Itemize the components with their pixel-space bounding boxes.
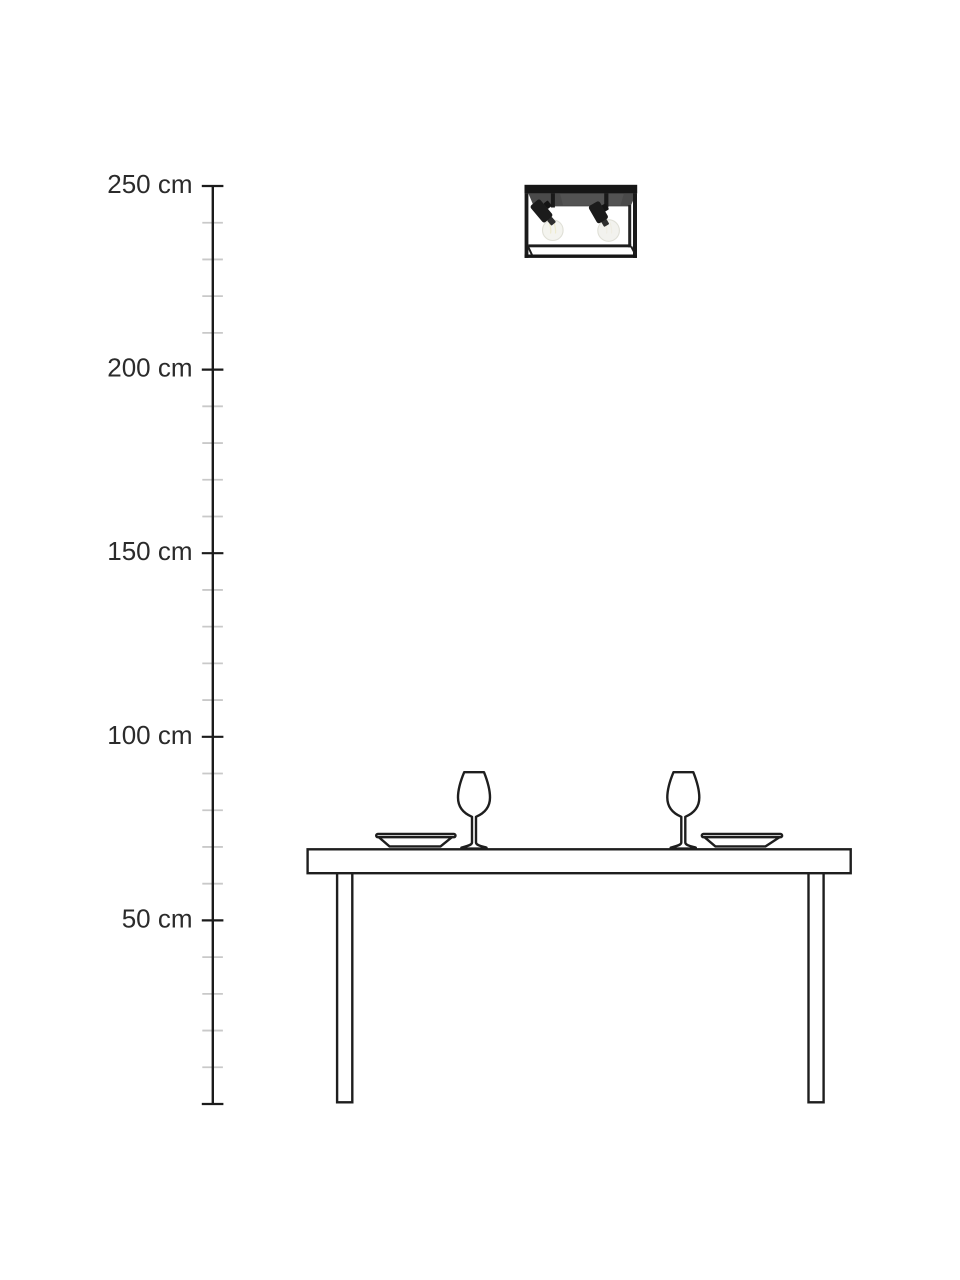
svg-text:50 cm: 50 cm	[122, 903, 193, 933]
svg-text:100 cm: 100 cm	[107, 720, 192, 750]
svg-text:250 cm: 250 cm	[107, 169, 192, 199]
svg-text:150 cm: 150 cm	[107, 536, 192, 566]
svg-text:200 cm: 200 cm	[107, 353, 192, 383]
